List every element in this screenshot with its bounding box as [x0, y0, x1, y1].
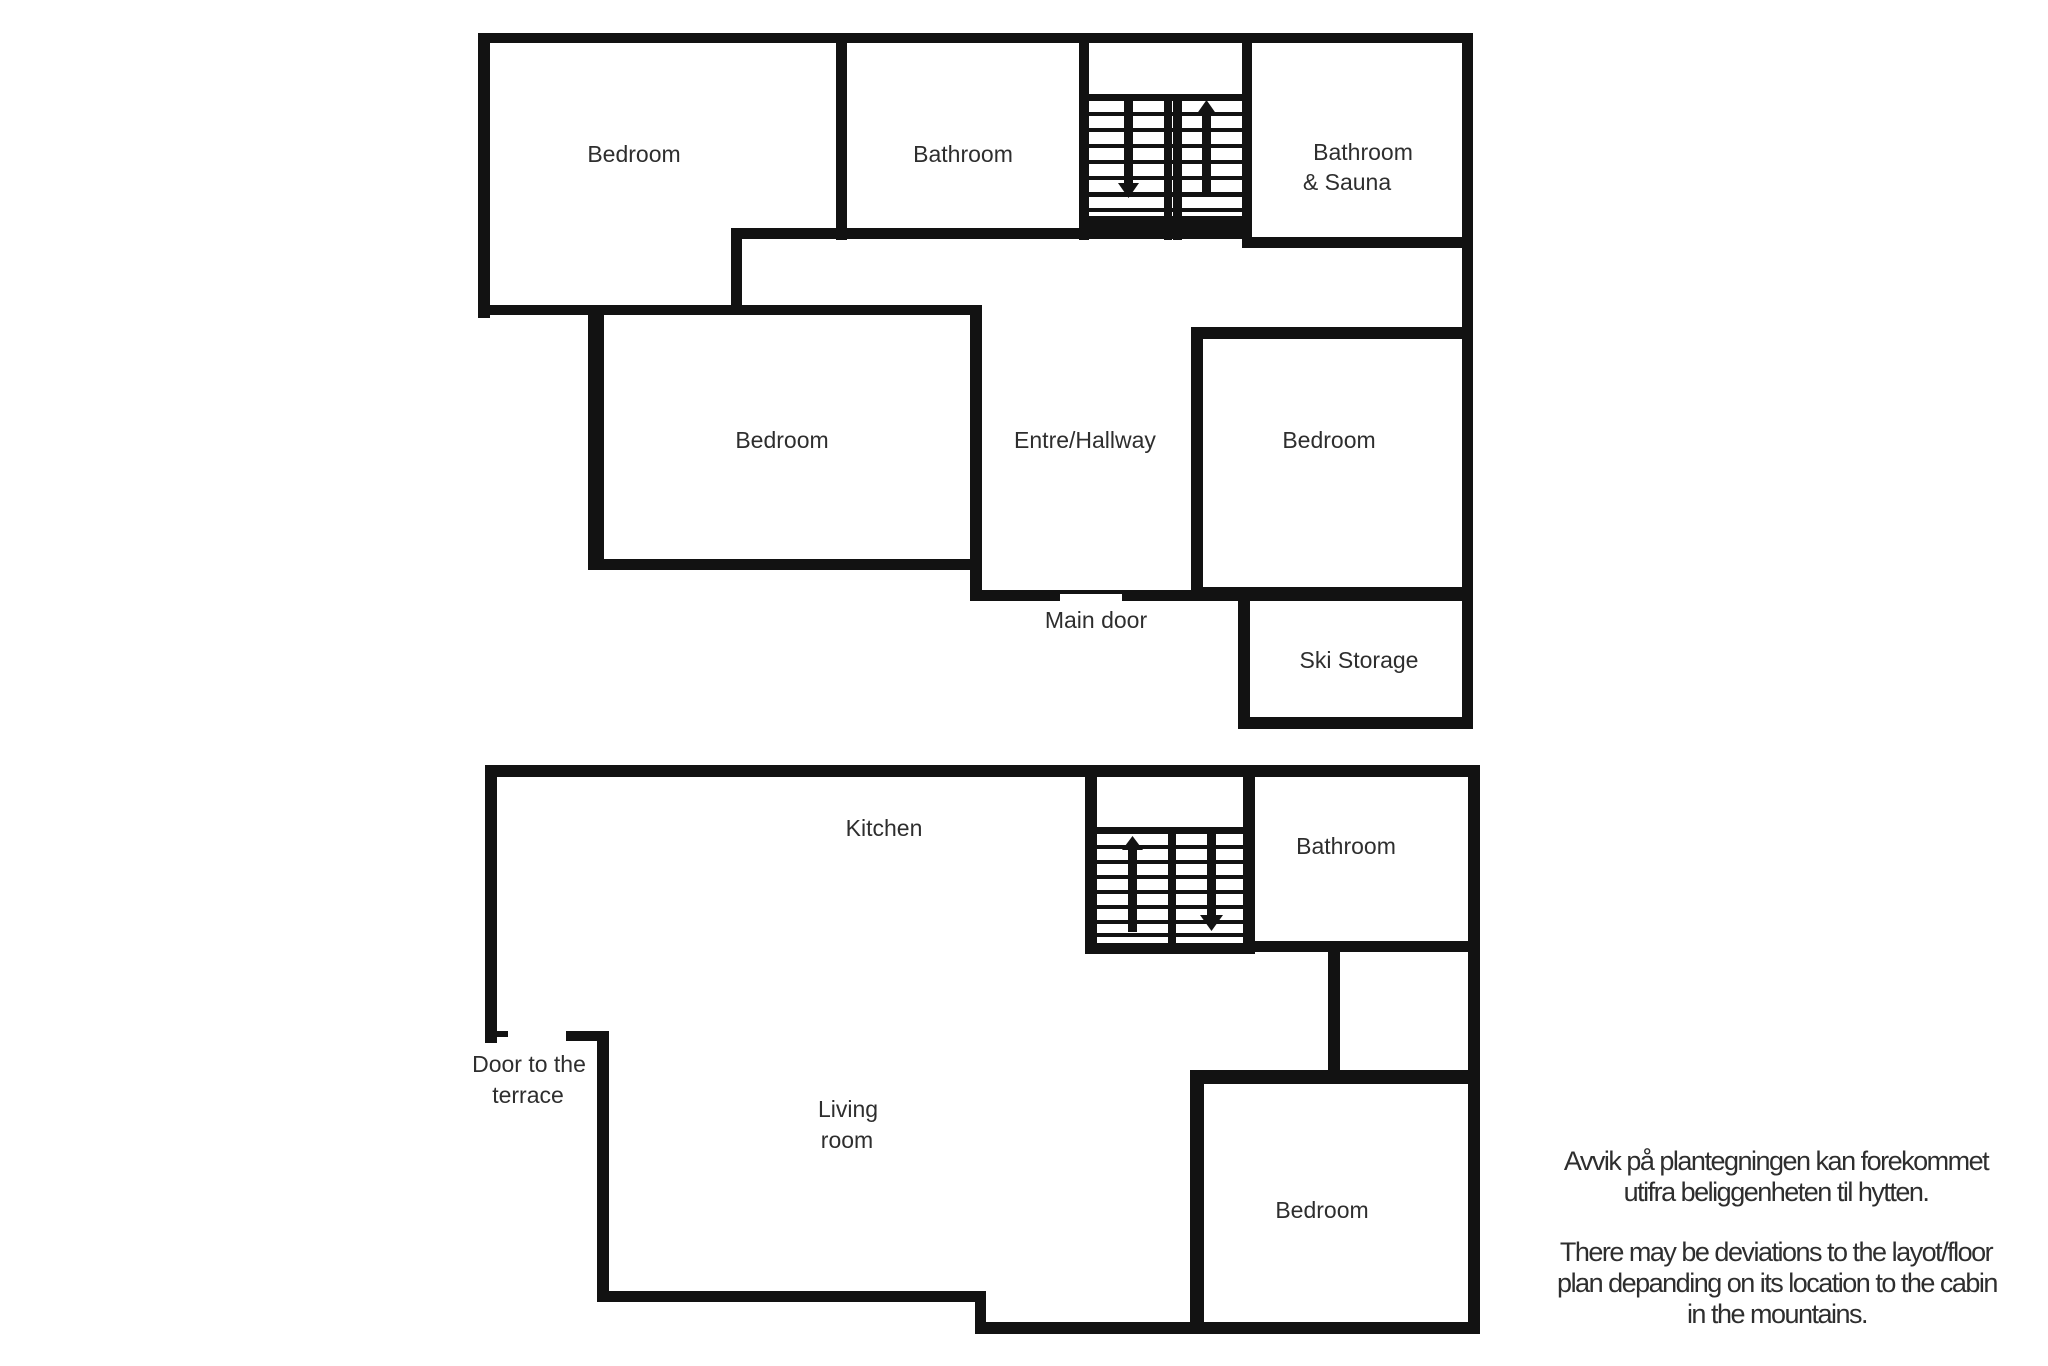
- svg-text:terrace: terrace: [492, 1082, 564, 1108]
- svg-text:Door to the: Door to the: [472, 1051, 586, 1077]
- svg-text:Ski Storage: Ski Storage: [1300, 647, 1419, 673]
- svg-text:Bathroom: Bathroom: [1296, 833, 1396, 859]
- svg-text:in the mountains.: in the mountains.: [1687, 1299, 1867, 1329]
- svg-text:Living: Living: [818, 1096, 878, 1122]
- svg-text:Kitchen: Kitchen: [846, 815, 923, 841]
- svg-text:Bedroom: Bedroom: [587, 141, 680, 167]
- svg-text:Avvik på plantegningen kan for: Avvik på plantegningen kan forekommet: [1564, 1146, 1990, 1176]
- svg-text:Bedroom: Bedroom: [1282, 427, 1375, 453]
- svg-text:Bedroom: Bedroom: [735, 427, 828, 453]
- svg-text:room: room: [821, 1127, 873, 1153]
- svg-text:Entre/Hallway: Entre/Hallway: [1014, 427, 1156, 453]
- svg-text:Bedroom: Bedroom: [1275, 1197, 1368, 1223]
- svg-text:utifra beliggenheten til hytte: utifra beliggenheten til hytten.: [1624, 1177, 1929, 1207]
- svg-text:Main door: Main door: [1045, 607, 1148, 633]
- svg-text:There may be deviations to the: There may be deviations to the layot/flo…: [1560, 1237, 1994, 1267]
- svg-text:plan depanding on its location: plan depanding on its location to the ca…: [1557, 1268, 1997, 1298]
- svg-text:Bathroom: Bathroom: [1313, 139, 1413, 165]
- svg-text:& Sauna: & Sauna: [1303, 169, 1391, 195]
- svg-text:Bathroom: Bathroom: [913, 141, 1013, 167]
